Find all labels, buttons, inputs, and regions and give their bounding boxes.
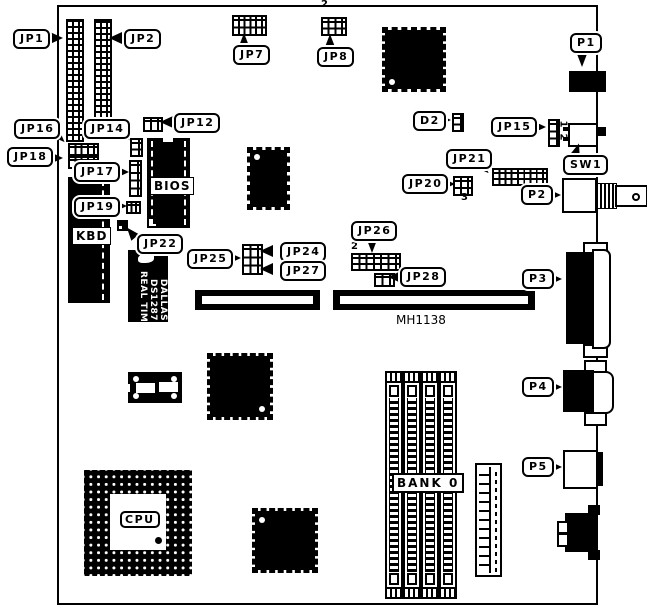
vconn-cells bbox=[479, 467, 491, 573]
kbd-label: KBD bbox=[72, 227, 111, 245]
qfp-chip-top-right bbox=[382, 27, 446, 92]
pin1-dot bbox=[259, 517, 265, 523]
slot-2 bbox=[333, 290, 535, 310]
vertical-connector bbox=[475, 463, 502, 577]
osc-notch bbox=[126, 384, 130, 392]
callout-jp20: JP20 bbox=[402, 174, 448, 194]
cpu-pin1-dot bbox=[155, 537, 162, 544]
jp24-arrow bbox=[260, 245, 273, 257]
simm-pins bbox=[423, 587, 437, 597]
p2-bnc-tip bbox=[615, 185, 647, 207]
pin1-dot bbox=[259, 406, 265, 412]
slot-1-opening bbox=[202, 296, 313, 304]
p5-edge-tab bbox=[596, 452, 603, 486]
jp15-pin2-number: 2 bbox=[557, 134, 567, 141]
jp8-pin2-number: 2 bbox=[321, 0, 328, 10]
slot-1 bbox=[195, 290, 320, 310]
bank0-label: BANK 0 bbox=[392, 473, 464, 493]
callout-jp27: JP27 bbox=[280, 261, 326, 281]
bios-label: BIOS bbox=[150, 177, 194, 195]
din-step-top bbox=[588, 505, 600, 515]
callout-jp17: JP17 bbox=[74, 162, 120, 182]
simm-pins bbox=[441, 373, 455, 383]
slot-2-opening bbox=[340, 296, 528, 304]
callout-p4: P4 bbox=[522, 377, 554, 397]
qfp-chip-center bbox=[207, 353, 273, 420]
jp16-header bbox=[68, 143, 99, 156]
callout-jp18: JP18 bbox=[7, 147, 53, 167]
callout-p2: P2 bbox=[521, 185, 553, 205]
jp12-arrow bbox=[160, 116, 173, 128]
callout-jp16: JP16 bbox=[14, 119, 60, 139]
osc-crystal-1 bbox=[136, 383, 155, 393]
callout-p5: P5 bbox=[522, 457, 554, 477]
p1-power-connector bbox=[569, 71, 606, 92]
jp26-header bbox=[351, 253, 401, 271]
p3-connector-body bbox=[566, 252, 594, 344]
simm-hook bbox=[443, 573, 453, 585]
dallas-rtc-chip: DALLAS DS1287 REAL TIME bbox=[128, 250, 168, 322]
dallas-rtc-text: DALLAS DS1287 REAL TIME bbox=[128, 266, 168, 334]
din-step-bottom bbox=[588, 550, 600, 560]
osc-hole bbox=[171, 393, 177, 399]
callout-jp21: JP21 bbox=[446, 149, 492, 169]
callout-jp8: JP8 bbox=[317, 47, 354, 67]
simm-pins bbox=[423, 373, 437, 383]
pin1-dot bbox=[254, 154, 260, 160]
simm-pins bbox=[405, 587, 419, 597]
jp7-header bbox=[232, 15, 267, 36]
vconn-dashes bbox=[495, 468, 497, 572]
p4-shell bbox=[592, 371, 614, 414]
bios-corner-mark bbox=[149, 219, 156, 226]
p2-bnc-body bbox=[562, 178, 597, 213]
p1-arrow bbox=[577, 54, 587, 67]
callout-jp25: JP25 bbox=[187, 249, 233, 269]
callout-jp1: JP1 bbox=[13, 29, 50, 49]
callout-jp12: JP12 bbox=[174, 113, 220, 133]
callout-d2: D2 bbox=[413, 111, 446, 131]
jp21-header bbox=[492, 168, 548, 186]
din-pin-2 bbox=[557, 533, 569, 547]
bios-chip: BIOS bbox=[147, 138, 190, 228]
jp14-header bbox=[130, 138, 143, 157]
callout-jp26: JP26 bbox=[351, 221, 397, 241]
jp17-header bbox=[129, 160, 142, 197]
simm-hook bbox=[425, 385, 435, 397]
osc-hole bbox=[133, 376, 139, 382]
oscillator-component bbox=[128, 372, 182, 403]
jp8-arrow bbox=[325, 34, 335, 47]
jp26-pin2-number: 2 bbox=[351, 242, 358, 252]
simm-hook bbox=[407, 385, 417, 397]
jumper-pip bbox=[119, 226, 122, 229]
callout-jp28: JP28 bbox=[400, 267, 446, 287]
dallas-line2: DS1287 bbox=[148, 266, 158, 334]
callout-jp15: JP15 bbox=[491, 117, 537, 137]
pin1-dot bbox=[389, 79, 395, 85]
p2-bnc-threads bbox=[595, 183, 617, 209]
simm-hook bbox=[389, 385, 399, 397]
callout-p3: P3 bbox=[522, 269, 554, 289]
cpu-label: CPU bbox=[120, 511, 160, 528]
simm-pins bbox=[441, 587, 455, 597]
bios-notch bbox=[163, 138, 173, 142]
callout-jp24: JP24 bbox=[280, 242, 326, 262]
kbd-chip: KBD bbox=[68, 177, 110, 303]
callout-jp22: JP22 bbox=[137, 234, 183, 254]
simm-pins bbox=[387, 587, 401, 597]
board-code-text: MH1138 bbox=[396, 313, 446, 327]
jp26-arrow bbox=[367, 240, 377, 253]
dallas-line3: REAL TIME bbox=[138, 266, 148, 334]
callout-jp7: JP7 bbox=[233, 45, 270, 65]
callout-jp2: JP2 bbox=[124, 29, 161, 49]
simm-pins bbox=[387, 373, 401, 383]
dallas-logo bbox=[138, 254, 154, 263]
p5-connector-body bbox=[563, 450, 598, 489]
cpu-die-area: CPU bbox=[110, 494, 166, 550]
motherboard-diagram: BIOS KBD DALLAS DS1287 REAL TIME MH1138 bbox=[0, 0, 647, 611]
jp20-pin3-number: 3 bbox=[461, 193, 468, 203]
jp15-pin1-number: 1 bbox=[557, 121, 567, 128]
p3-shell bbox=[592, 249, 611, 349]
p4-connector-body bbox=[563, 370, 594, 412]
d2-diode bbox=[452, 113, 464, 132]
jp19-header bbox=[126, 201, 141, 214]
edge-stub bbox=[598, 127, 606, 136]
callout-p1: P1 bbox=[570, 33, 602, 53]
simm-hook bbox=[389, 573, 399, 585]
jp27-arrow bbox=[260, 263, 273, 275]
simm-hook bbox=[407, 573, 417, 585]
cpu-socket: CPU bbox=[84, 470, 192, 576]
callout-jp19: JP19 bbox=[74, 197, 120, 217]
callout-sw1: SW1 bbox=[563, 155, 608, 175]
p4-screw-bottom bbox=[584, 412, 607, 426]
jp1-arrow bbox=[50, 32, 63, 44]
jp2-arrow bbox=[109, 32, 122, 44]
qfp-chip-mid-right bbox=[247, 147, 290, 210]
simm-pins bbox=[405, 373, 419, 383]
jp1-header bbox=[66, 19, 84, 142]
qfp-chip-bottom bbox=[252, 508, 318, 573]
callout-jp14: JP14 bbox=[84, 119, 130, 139]
dallas-line1: DALLAS bbox=[158, 266, 168, 334]
osc-crystal-2 bbox=[159, 382, 178, 392]
simm-hook bbox=[425, 573, 435, 585]
simm-hook bbox=[443, 385, 453, 397]
din-connector-body bbox=[565, 513, 597, 552]
osc-hole bbox=[133, 393, 139, 399]
p2-bnc-hole bbox=[632, 193, 640, 201]
